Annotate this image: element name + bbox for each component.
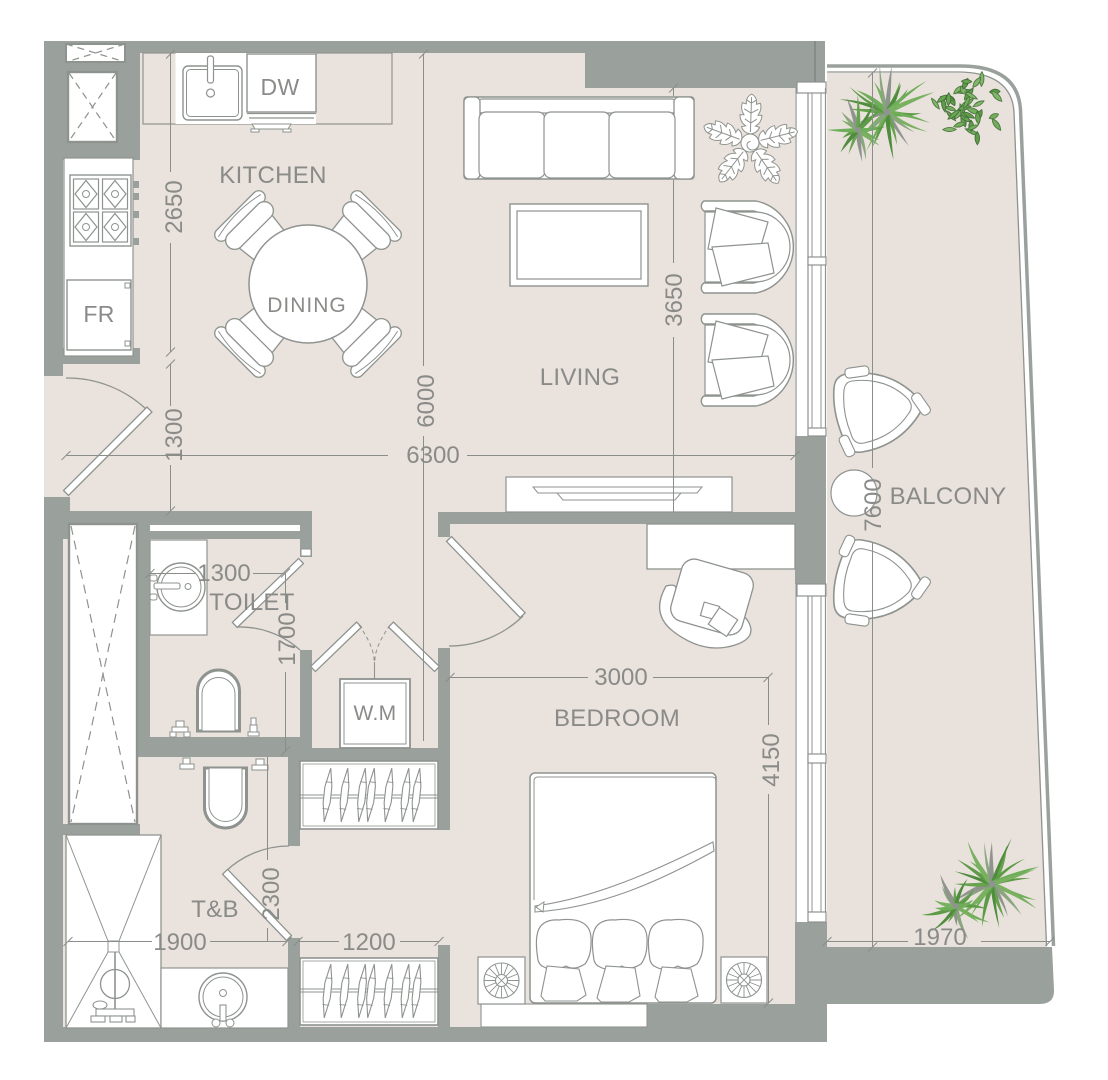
svg-text:1970: 1970 — [913, 924, 966, 951]
svg-text:KITCHEN: KITCHEN — [219, 162, 326, 189]
svg-text:DW: DW — [261, 74, 300, 100]
svg-text:7600: 7600 — [860, 478, 887, 531]
svg-text:1700: 1700 — [274, 612, 301, 665]
svg-text:FR: FR — [83, 301, 114, 327]
svg-text:3650: 3650 — [661, 273, 688, 326]
svg-text:1200: 1200 — [342, 929, 395, 956]
svg-text:BEDROOM: BEDROOM — [554, 705, 680, 732]
svg-text:2300: 2300 — [258, 867, 285, 920]
svg-text:6300: 6300 — [406, 442, 459, 469]
svg-text:3000: 3000 — [594, 664, 647, 691]
svg-text:TOILET: TOILET — [209, 589, 294, 616]
svg-text:6000: 6000 — [413, 374, 440, 427]
svg-text:1300: 1300 — [161, 408, 188, 461]
svg-text:DINING: DINING — [267, 294, 347, 317]
svg-text:W.M: W.M — [354, 702, 397, 725]
svg-text:4150: 4150 — [758, 733, 785, 786]
svg-text:T&B: T&B — [191, 896, 239, 923]
svg-text:BALCONY: BALCONY — [890, 483, 1007, 510]
svg-text:1300: 1300 — [197, 560, 250, 587]
svg-text:LIVING: LIVING — [540, 364, 621, 391]
svg-text:1900: 1900 — [153, 929, 206, 956]
svg-text:2650: 2650 — [161, 180, 188, 233]
